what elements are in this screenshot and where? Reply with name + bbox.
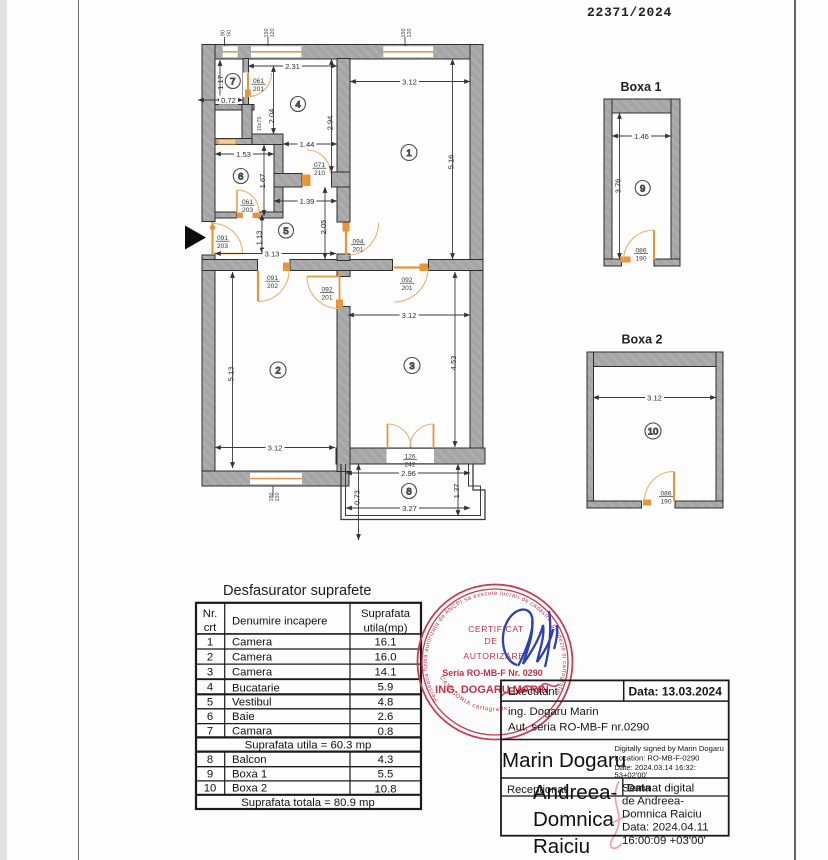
svg-text:0.73: 0.73 <box>353 490 362 505</box>
svg-text:8: 8 <box>406 487 411 498</box>
svg-text:4: 4 <box>295 100 300 111</box>
svg-text:Domnica: Domnica <box>533 808 614 831</box>
svg-text:Digitally signed by Marin Doga: Digitally signed by Marin Dogaru <box>615 744 724 753</box>
svg-text:Data: 13.03.2024: Data: 13.03.2024 <box>629 685 723 699</box>
svg-text:4.53: 4.53 <box>449 356 458 371</box>
svg-text:ing. Dogaru Marin: ing. Dogaru Marin <box>508 706 599 718</box>
svg-text:5: 5 <box>207 696 213 708</box>
svg-text:1.13: 1.13 <box>255 231 264 246</box>
svg-text:Data: Data <box>627 783 652 795</box>
svg-text:10: 10 <box>204 783 217 795</box>
svg-text:1.67: 1.67 <box>258 174 267 189</box>
svg-text:3.12: 3.12 <box>647 394 662 403</box>
svg-text:60: 60 <box>227 30 233 36</box>
svg-text:210: 210 <box>314 170 325 177</box>
svg-text:1.37: 1.37 <box>452 484 461 499</box>
svg-text:Vestibul: Vestibul <box>232 696 272 708</box>
svg-text:0.72: 0.72 <box>221 96 236 105</box>
svg-text:201: 201 <box>401 285 412 292</box>
svg-text:2.31: 2.31 <box>285 62 300 71</box>
svg-text:Camera: Camera <box>232 667 273 679</box>
svg-text:202: 202 <box>267 283 278 290</box>
svg-text:190: 190 <box>635 256 646 263</box>
svg-text:Baie: Baie <box>232 711 255 723</box>
svg-text:Boxa 1: Boxa 1 <box>621 80 662 94</box>
svg-text:1.46: 1.46 <box>634 132 649 141</box>
svg-text:Boxa 2: Boxa 2 <box>232 783 267 795</box>
svg-text:Boxa 2: Boxa 2 <box>622 333 663 347</box>
svg-text:1.44: 1.44 <box>300 140 315 149</box>
svg-text:1: 1 <box>207 637 213 649</box>
svg-text:10.8: 10.8 <box>375 784 397 796</box>
svg-text:190: 190 <box>660 499 671 506</box>
svg-text:Aut. seria RO-MB-F nr.0290: Aut. seria RO-MB-F nr.0290 <box>508 722 649 734</box>
svg-text:3.12: 3.12 <box>402 78 417 87</box>
svg-text:2: 2 <box>207 652 213 664</box>
svg-text:3: 3 <box>207 667 213 679</box>
svg-text:7: 7 <box>230 77 235 88</box>
svg-text:Marin Dogaru: Marin Dogaru <box>502 749 626 772</box>
svg-text:9: 9 <box>640 184 645 195</box>
svg-text:9: 9 <box>207 769 213 781</box>
svg-text:120: 120 <box>270 29 276 38</box>
svg-text:Desfasurator suprafete: Desfasurator suprafete <box>223 583 371 599</box>
svg-text:3: 3 <box>409 361 414 372</box>
svg-text:8: 8 <box>207 754 213 766</box>
svg-text:22371/2024: 22371/2024 <box>587 5 672 20</box>
svg-text:3.13: 3.13 <box>265 250 280 259</box>
svg-text:150: 150 <box>275 493 281 502</box>
svg-text:Denumire incapere: Denumire incapere <box>232 616 327 628</box>
svg-text:crt: crt <box>204 622 217 634</box>
svg-text:203: 203 <box>217 243 228 250</box>
svg-text:120: 120 <box>407 29 413 38</box>
svg-text:5.13: 5.13 <box>227 367 236 382</box>
svg-text:201: 201 <box>321 295 332 302</box>
svg-text:201: 201 <box>352 247 363 254</box>
svg-text:5: 5 <box>283 226 288 237</box>
svg-text:de Andreea-: de Andreea- <box>622 796 684 808</box>
svg-text:242: 242 <box>404 462 415 469</box>
svg-text:4.3: 4.3 <box>378 754 394 766</box>
svg-text:10: 10 <box>648 427 659 438</box>
svg-text:53+02'00': 53+02'00' <box>615 770 648 779</box>
svg-text:Raiciu: Raiciu <box>533 835 590 858</box>
svg-text:Suprafata: Suprafata <box>361 608 411 620</box>
svg-text:utila(mp): utila(mp) <box>364 623 408 635</box>
svg-text:Balcon: Balcon <box>232 754 267 766</box>
svg-text:3.76: 3.76 <box>614 179 623 194</box>
svg-text:2.6: 2.6 <box>378 711 394 723</box>
svg-text:2: 2 <box>275 366 280 377</box>
svg-text:4.8: 4.8 <box>378 696 394 708</box>
svg-text:Camara: Camara <box>232 725 273 737</box>
svg-text:1.17: 1.17 <box>216 75 225 90</box>
svg-text:3.12: 3.12 <box>402 311 417 320</box>
svg-text:Bucatarie: Bucatarie <box>232 683 280 695</box>
svg-text:16.0: 16.0 <box>375 652 397 664</box>
svg-text:2.94: 2.94 <box>326 116 335 131</box>
svg-text:2.05: 2.05 <box>319 220 328 235</box>
svg-text:Data: 2024.04.11: Data: 2024.04.11 <box>622 822 709 834</box>
svg-text:DE: DE <box>484 636 497 646</box>
svg-text:3.27: 3.27 <box>402 504 417 513</box>
svg-text:5.16: 5.16 <box>447 155 456 170</box>
svg-text:Boxa 1: Boxa 1 <box>232 769 267 781</box>
svg-text:5.9: 5.9 <box>378 681 394 693</box>
svg-text:0.8: 0.8 <box>378 726 394 738</box>
svg-text:Domnica Raiciu: Domnica Raiciu <box>622 809 702 821</box>
svg-text:Executant: Executant <box>508 686 559 698</box>
svg-text:AUTORIZARE: AUTORIZARE <box>463 651 524 661</box>
svg-text:3.12: 3.12 <box>268 444 283 453</box>
svg-text:201: 201 <box>253 86 264 93</box>
svg-text:203: 203 <box>242 207 253 214</box>
svg-text:16.1: 16.1 <box>375 637 397 649</box>
svg-text:Camera: Camera <box>232 637 273 649</box>
svg-text:1: 1 <box>406 148 411 159</box>
svg-text:7: 7 <box>207 725 213 737</box>
svg-text:Suprafata totala = 80.9 mp: Suprafata totala = 80.9 mp <box>241 797 374 809</box>
svg-text:Seria RO-MB-F Nr. 0290: Seria RO-MB-F Nr. 0290 <box>442 668 543 678</box>
svg-text:Camera: Camera <box>232 652 273 664</box>
svg-text:1.39: 1.39 <box>300 197 315 206</box>
svg-text:Nr.: Nr. <box>203 608 217 620</box>
svg-text:Location: RO-MB-F-0290: Location: RO-MB-F-0290 <box>615 754 700 763</box>
svg-text:6: 6 <box>238 172 243 183</box>
svg-text:14.1: 14.1 <box>375 667 397 679</box>
svg-text:2.96: 2.96 <box>401 469 416 478</box>
svg-text:6: 6 <box>207 711 213 723</box>
svg-text:Andreea-: Andreea- <box>533 781 617 804</box>
svg-text:1.53: 1.53 <box>236 150 251 159</box>
svg-text:5.5: 5.5 <box>378 769 394 781</box>
svg-text:16:00:09 +03'00': 16:00:09 +03'00' <box>622 835 706 847</box>
svg-text:2.04: 2.04 <box>267 109 276 124</box>
svg-text:4: 4 <box>207 681 213 693</box>
svg-text:Suprafata utila = 60.3 mp: Suprafata utila = 60.3 mp <box>245 740 372 752</box>
svg-text:CERTIFICAT: CERTIFICAT <box>468 624 524 634</box>
svg-text:10x75: 10x75 <box>257 117 263 132</box>
